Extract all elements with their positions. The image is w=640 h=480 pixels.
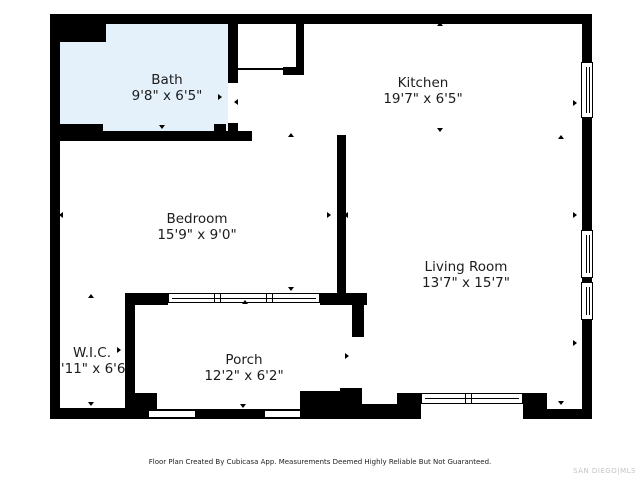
room-name: Bedroom — [157, 211, 236, 227]
room-label-bath: Bath 9'8" x 6'5" — [132, 72, 203, 104]
room-name: Living Room — [422, 259, 510, 275]
disclaimer-text: Floor Plan Created By Cubicasa App. Meas… — [0, 458, 640, 466]
window — [581, 230, 593, 278]
wall — [50, 14, 106, 42]
room-label-bedroom: Bedroom 15'9" x 9'0" — [157, 211, 236, 243]
wall — [283, 67, 304, 75]
room-name: Kitchen — [383, 75, 462, 91]
room-dimensions: 19'7" x 6'5" — [383, 91, 462, 107]
room-dimensions: 15'9" x 9'0" — [157, 227, 236, 243]
dimension-arrow-left — [55, 347, 59, 353]
dimension-arrow-down — [159, 125, 165, 129]
dimension-arrow-left — [234, 99, 238, 105]
dimension-arrow-down — [88, 402, 94, 406]
wall — [340, 388, 362, 419]
room-name: Bath — [132, 72, 203, 88]
porch-screen-opening — [265, 410, 300, 418]
dimension-arrow-right — [117, 347, 121, 353]
dimension-arrow-up — [159, 19, 165, 23]
wall — [50, 131, 252, 141]
wall — [523, 393, 547, 419]
dimension-arrow-left — [55, 94, 59, 100]
dimension-arrow-up — [288, 133, 294, 137]
room-label-living-room: Living Room 13'7" x 15'7" — [422, 259, 510, 291]
dimension-arrow-left — [344, 212, 348, 218]
dimension-arrow-down — [240, 404, 246, 408]
wall — [397, 393, 421, 419]
room-dimensions: 9'8" x 6'5" — [132, 88, 203, 104]
entry-door-line — [238, 68, 283, 70]
room-dimensions: 3'11" x 6'6" — [52, 361, 131, 377]
bath-floor-fill — [60, 42, 106, 131]
dimension-arrow-right — [573, 212, 577, 218]
room-name: Porch — [204, 352, 283, 368]
dimension-arrow-up — [558, 135, 564, 139]
wall — [228, 123, 238, 131]
room-label-kitchen: Kitchen 19'7" x 6'5" — [383, 75, 462, 107]
dimension-arrow-right — [573, 100, 577, 106]
wall — [362, 404, 397, 419]
wall — [125, 293, 135, 419]
window — [581, 62, 593, 118]
dimension-arrow-right — [573, 340, 577, 346]
dimension-arrow-down — [437, 128, 443, 132]
dimension-arrow-up — [242, 300, 248, 304]
wall — [547, 409, 592, 419]
door-arrow-right — [345, 353, 349, 359]
wall — [135, 393, 157, 409]
dimension-arrow-right — [327, 212, 331, 218]
room-dimensions: 12'2" x 6'2" — [204, 368, 283, 384]
dimension-arrow-left — [59, 212, 63, 218]
room-label-porch: Porch 12'2" x 6'2" — [204, 352, 283, 384]
mls-watermark: SAN DIEGO|MLS — [573, 467, 636, 475]
floor-plan: Bath 9'8" x 6'5" Kitchen 19'7" x 6'5" Be… — [0, 0, 640, 480]
wall — [50, 408, 135, 419]
window — [581, 282, 593, 320]
wall — [214, 124, 226, 131]
room-dimensions: 13'7" x 15'7" — [422, 275, 510, 291]
dimension-arrow-up — [437, 22, 443, 26]
wall — [228, 14, 238, 83]
wall — [50, 124, 103, 131]
wall — [50, 14, 592, 24]
dimension-arrow-down — [288, 287, 294, 291]
porch-screen-opening — [149, 410, 195, 418]
dimension-arrow-down — [558, 401, 564, 405]
dimension-arrow-up — [88, 294, 94, 298]
wall — [352, 295, 364, 337]
window — [421, 393, 523, 404]
dimension-arrow-right — [218, 94, 222, 100]
